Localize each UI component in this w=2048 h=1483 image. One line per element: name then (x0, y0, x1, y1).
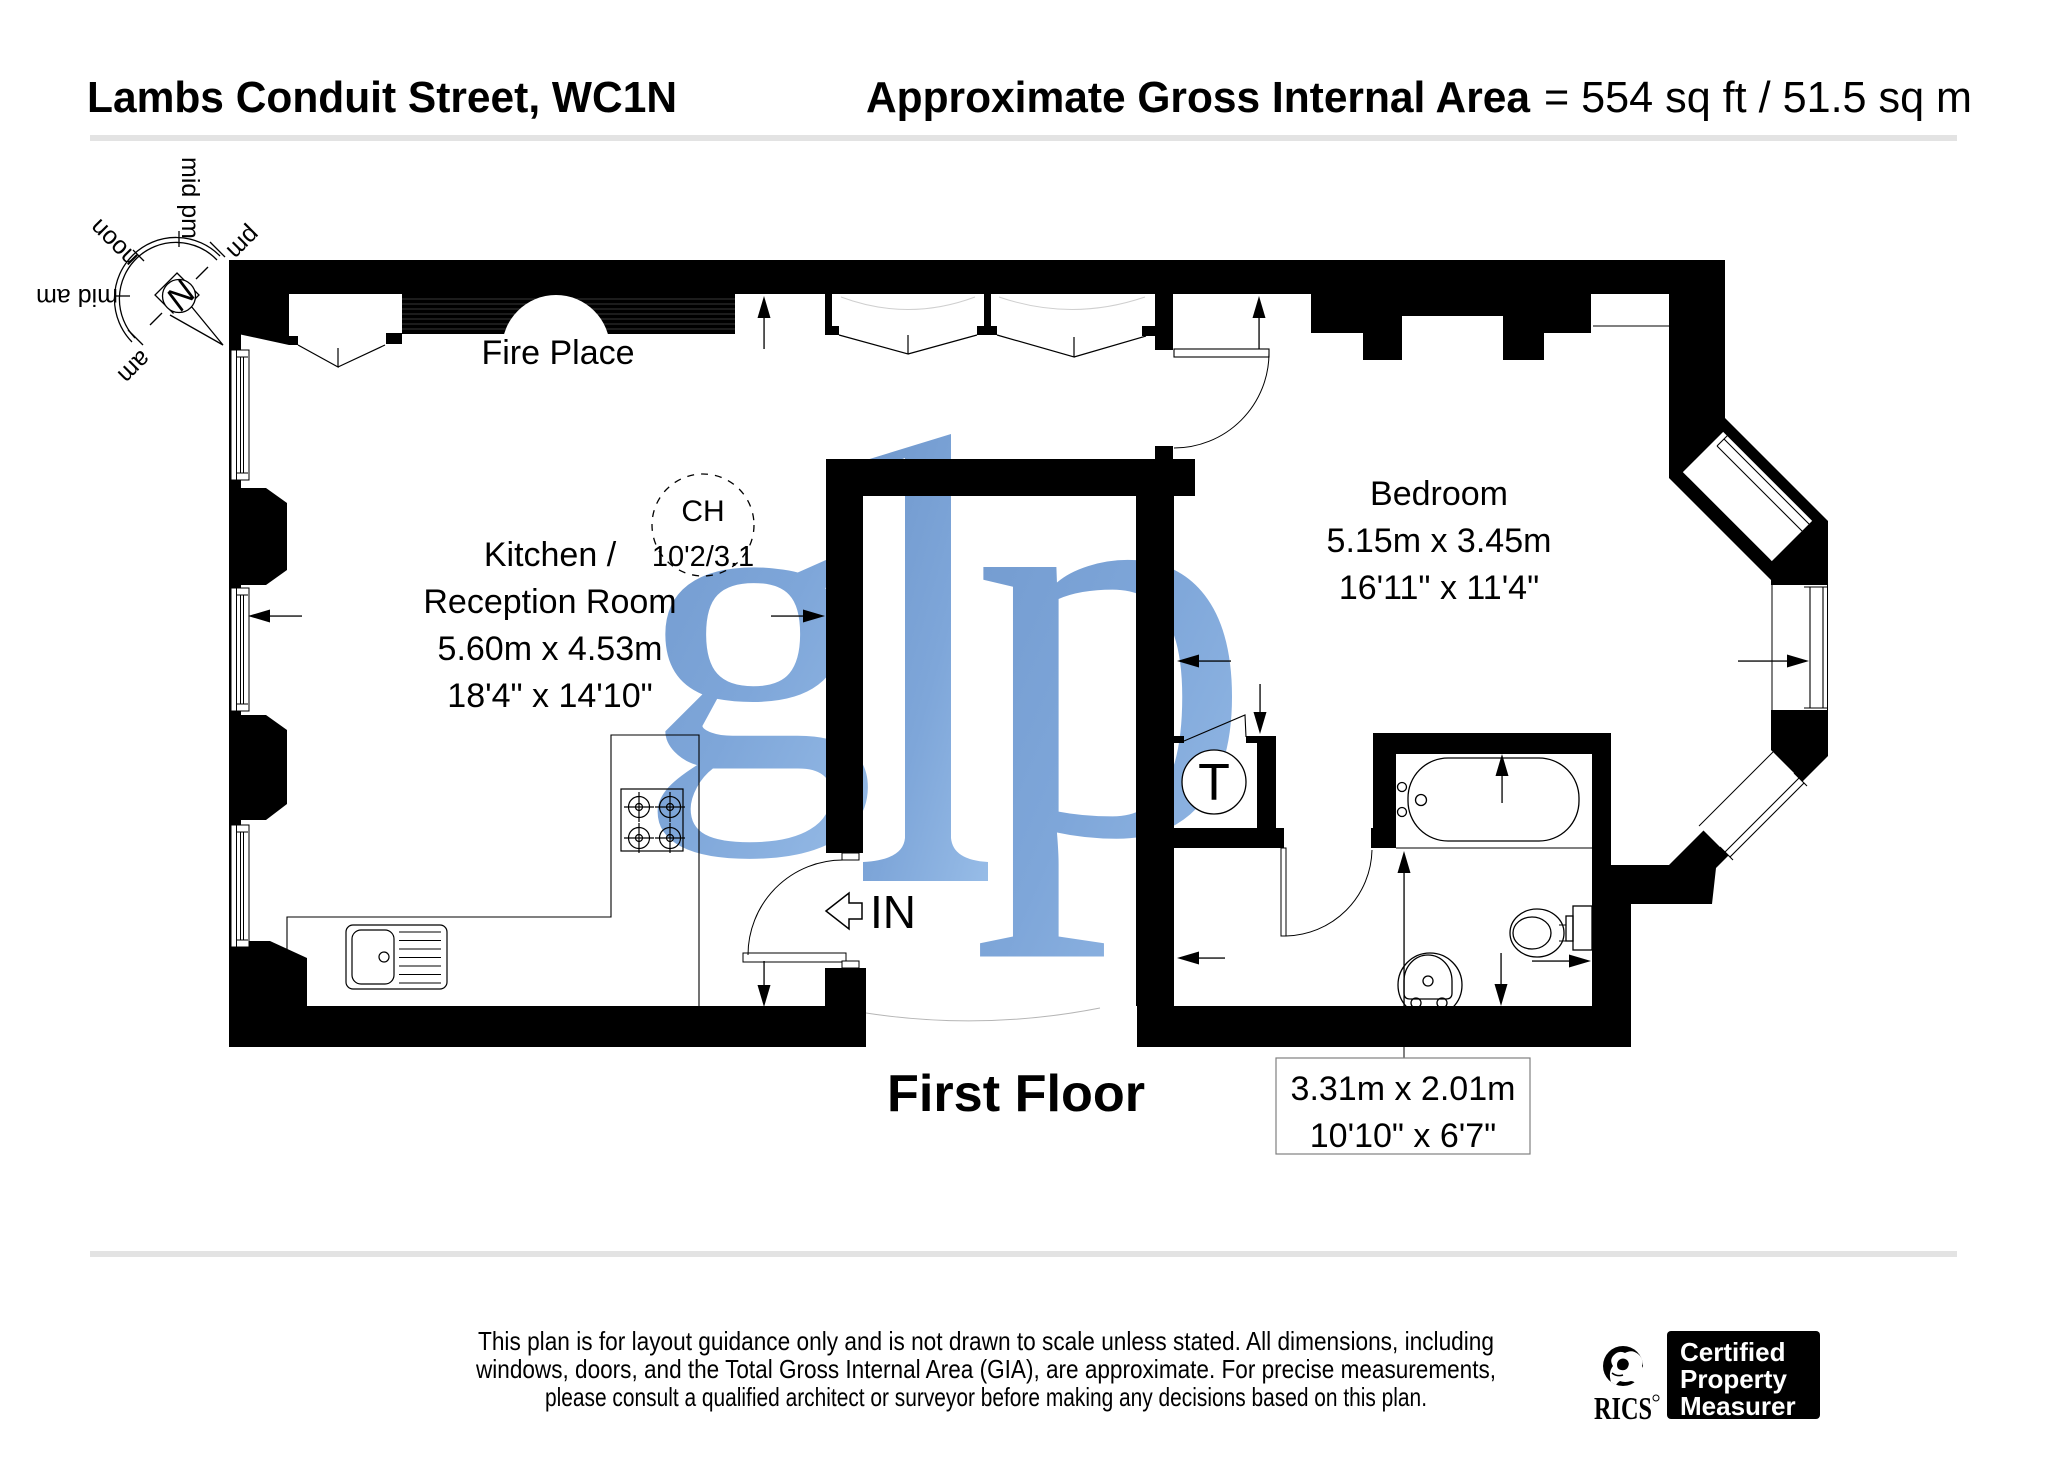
svg-text:5.15m x 3.45m: 5.15m x 3.45m (1327, 522, 1552, 560)
svg-text:Certified: Certified (1680, 1337, 1785, 1367)
svg-text:Approximate Gross Internal Are: Approximate Gross Internal Area (866, 73, 1530, 122)
svg-text:10'2/3.1: 10'2/3.1 (652, 541, 754, 573)
svg-text:Reception Room: Reception Room (423, 583, 676, 621)
svg-text:First Floor: First Floor (887, 1065, 1145, 1123)
svg-text:Kitchen /: Kitchen / (484, 536, 617, 574)
svg-text:5.60m x 4.53m: 5.60m x 4.53m (438, 630, 663, 668)
svg-text:Lambs Conduit Street, WC1N: Lambs Conduit Street, WC1N (87, 73, 677, 122)
svg-text:CH: CH (681, 495, 724, 528)
svg-text:mid pm: mid pm (176, 157, 204, 239)
svg-text:3.31m x 2.01m: 3.31m x 2.01m (1291, 1070, 1516, 1108)
svg-text:= 554 sq ft / 51.5 sq m: = 554 sq ft / 51.5 sq m (1544, 73, 1972, 122)
svg-text:Fire Place: Fire Place (481, 334, 634, 372)
svg-text:p: p (971, 316, 1254, 960)
svg-text:Bedroom: Bedroom (1370, 475, 1508, 513)
svg-text:please consult a qualified arc: please consult a qualified architect or … (545, 1382, 1427, 1412)
svg-text:This plan is for layout guidan: This plan is for layout guidance only an… (478, 1326, 1494, 1356)
svg-text:10'10" x 6'7": 10'10" x 6'7" (1310, 1117, 1496, 1155)
svg-text:RICS: RICS (1594, 1390, 1652, 1426)
svg-text:windows, doors, and the Total: windows, doors, and the Total Gross Inte… (475, 1354, 1496, 1384)
svg-text:Property: Property (1680, 1364, 1787, 1394)
svg-text:mid am: mid am (36, 283, 118, 311)
svg-text:IN: IN (870, 886, 916, 938)
svg-text:Measurer: Measurer (1680, 1391, 1796, 1421)
svg-text:18'4" x 14'10": 18'4" x 14'10" (447, 677, 652, 715)
svg-text:T: T (1198, 754, 1230, 812)
svg-text:16'11" x 11'4": 16'11" x 11'4" (1339, 569, 1539, 607)
